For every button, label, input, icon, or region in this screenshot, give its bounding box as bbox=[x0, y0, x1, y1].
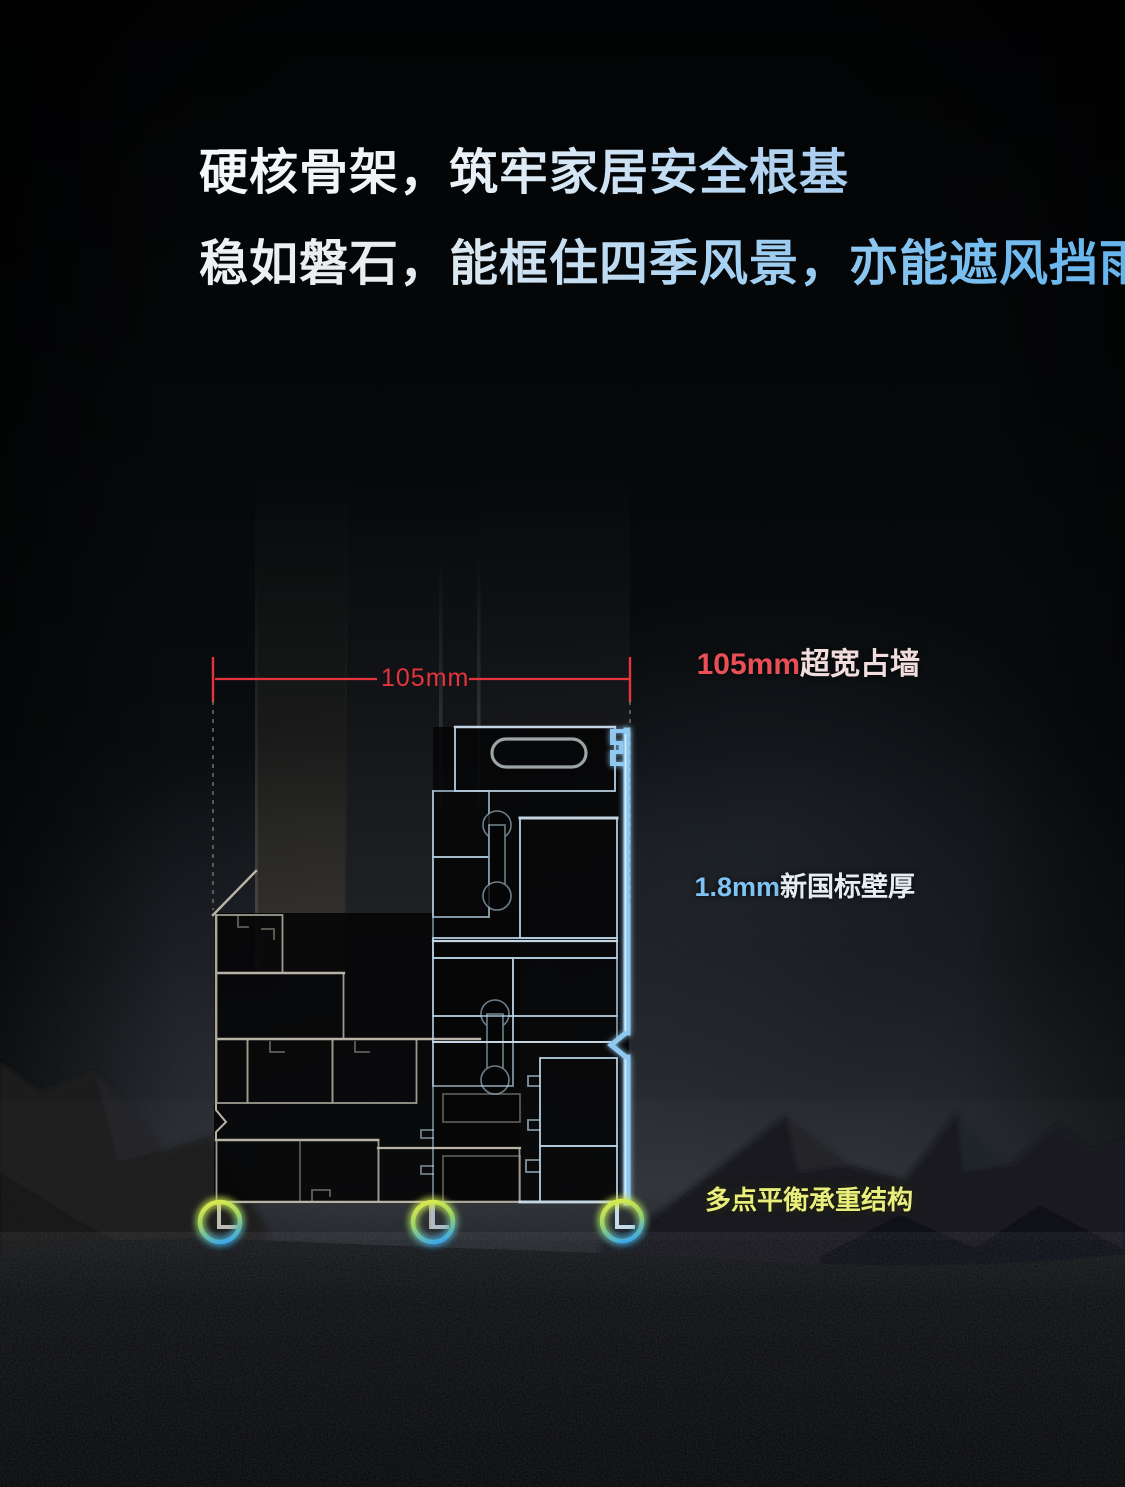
callout-wall-thickness: 1.8mm新国标壁厚 bbox=[694, 865, 915, 904]
callout-wall-thickness-text: 新国标壁厚 bbox=[780, 872, 915, 902]
headline-line1: 硬核骨架，筑牢家居安全根基 bbox=[199, 133, 849, 204]
headline-line2: 稳如磐石，能框住四季风景，亦能遮风挡雨 bbox=[199, 224, 1125, 295]
dimension-value-label: 105mm bbox=[381, 664, 467, 693]
callout-wall-width-text: 超宽占墙 bbox=[800, 648, 920, 681]
promo-banner: 硬核骨架，筑牢家居安全根基 稳如磐石，能框住四季风景，亦能遮风挡雨 105mm … bbox=[0, 0, 1125, 1487]
callout-bearing-structure-text: 多点平衡承重结构 bbox=[705, 1185, 913, 1215]
callout-bearing-structure: 多点平衡承重结构 bbox=[705, 1180, 913, 1217]
callout-wall-width-value: 105mm bbox=[697, 648, 800, 681]
callout-wall-width: 105mm超宽占墙 bbox=[697, 639, 920, 683]
callout-wall-thickness-value: 1.8mm bbox=[694, 872, 780, 902]
